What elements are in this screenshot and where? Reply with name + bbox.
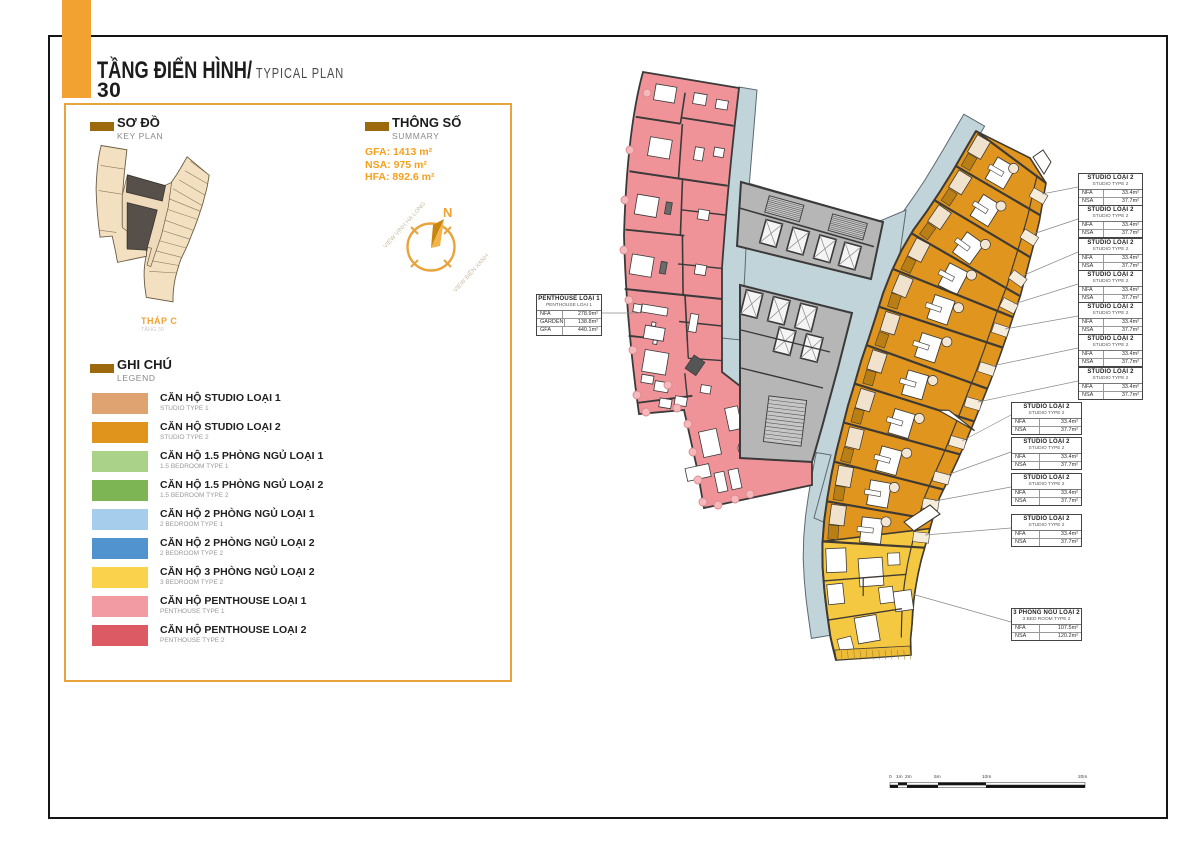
svg-text:5m: 5m: [934, 774, 941, 780]
svg-text:20m: 20m: [1078, 774, 1087, 780]
svg-text:2m: 2m: [905, 774, 912, 780]
svg-text:10m: 10m: [982, 774, 991, 780]
svg-text:0: 0: [889, 774, 892, 780]
svg-text:1m: 1m: [896, 774, 903, 780]
